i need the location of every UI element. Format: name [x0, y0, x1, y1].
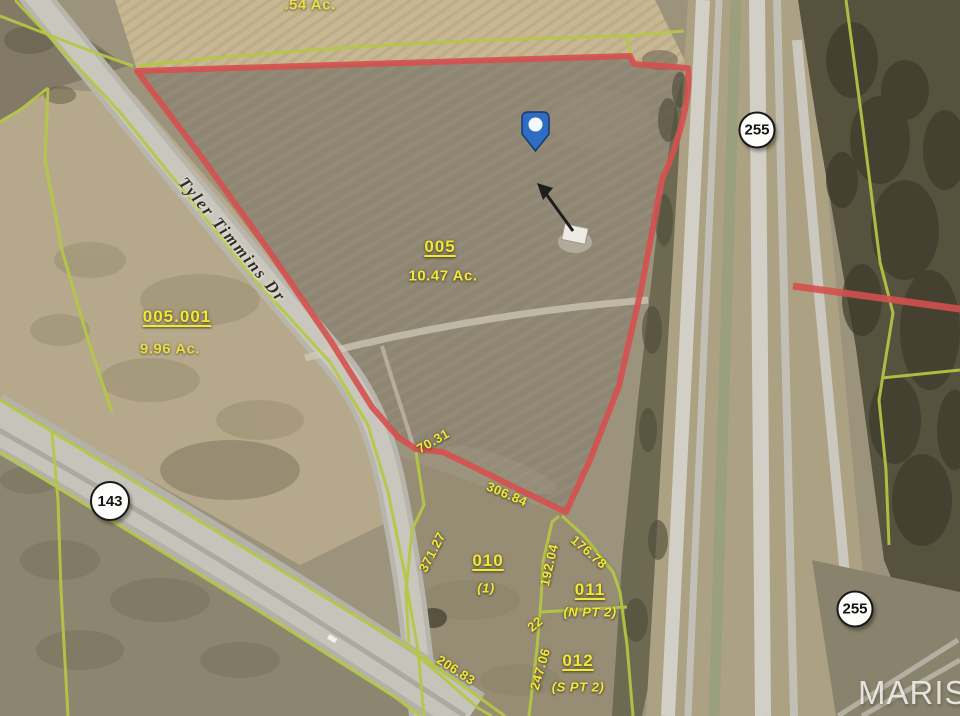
parcel-label-011: 011: [575, 580, 605, 600]
parcel-label-005001: 005.001: [143, 307, 211, 327]
route-shield-255-north: 255: [739, 112, 776, 149]
parcel-label-012: 012: [562, 651, 593, 671]
parcel-label-010: 010: [472, 551, 503, 571]
parcel-acreage-005001: 9.96 Ac.: [140, 341, 200, 358]
parcel-acreage-005: 10.47 Ac.: [409, 268, 478, 285]
map-canvas[interactable]: .54 Ac. Tyler Timmins Dr 005 10.47 Ac. 0…: [0, 0, 960, 716]
route-shield-255-south: 255: [837, 591, 874, 628]
parcel-note-010: (1): [477, 581, 494, 596]
parcel-label-005: 005: [424, 237, 455, 257]
satellite-terrain: [0, 0, 960, 716]
parcel-note-012: (S PT 2): [552, 680, 604, 695]
route-shield-143: 143: [90, 481, 130, 521]
parcel-note-011: (N PT 2): [563, 605, 616, 620]
top-parcel-acreage: .54 Ac.: [284, 0, 335, 14]
maris-watermark: MARIS: [858, 674, 960, 712]
